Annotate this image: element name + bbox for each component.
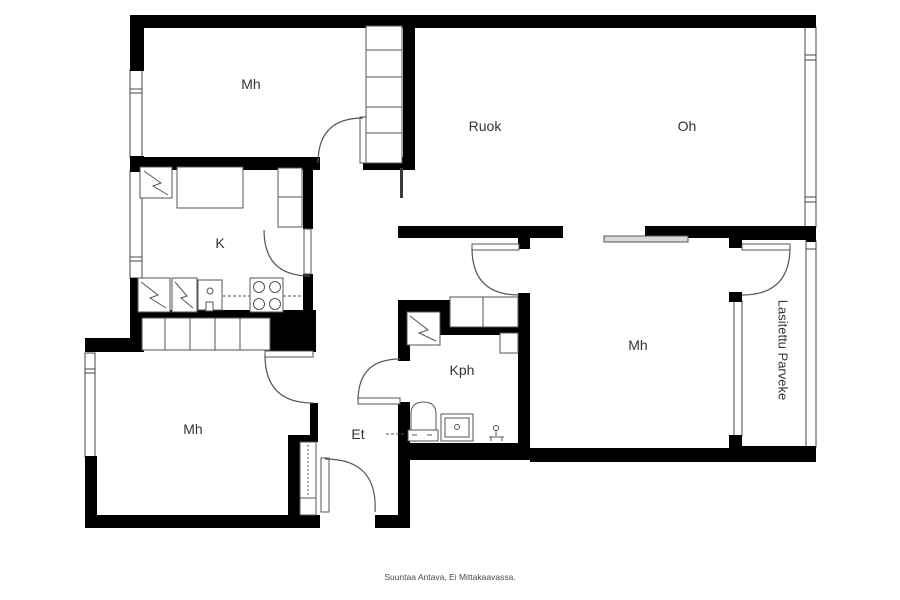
window-balcony-right bbox=[806, 241, 816, 447]
door-arc-mh-top bbox=[318, 118, 363, 163]
room-label-mh-right: Mh bbox=[628, 337, 647, 353]
toilet-icon bbox=[411, 402, 436, 432]
hall-cabinet bbox=[450, 297, 518, 327]
wall-block-kitchen-mh bbox=[269, 312, 316, 352]
sliding-door bbox=[604, 236, 688, 242]
wall-left-corner bbox=[130, 15, 144, 71]
door-arc-entry bbox=[325, 459, 375, 512]
wall-vest-mh-b bbox=[518, 293, 530, 460]
wall-vest-mh-a bbox=[518, 238, 530, 249]
window-mh-top-left bbox=[130, 70, 142, 157]
wall-mh-balcony-b bbox=[729, 292, 742, 302]
wall-kitchen-right-a bbox=[303, 163, 313, 229]
door-leaf-kph bbox=[358, 398, 400, 404]
wall-et-west-lower bbox=[288, 442, 300, 518]
room-label-kph: Kph bbox=[450, 362, 475, 378]
wall-mh-balcony-c bbox=[729, 435, 742, 460]
kph-cabinet bbox=[500, 333, 518, 353]
wall-thin-partition bbox=[400, 168, 403, 198]
door-arc-mh-right bbox=[472, 248, 519, 295]
wall-kph-bottom bbox=[398, 443, 530, 460]
room-label-oh: Oh bbox=[678, 118, 697, 134]
wall-balcony-right-top bbox=[806, 226, 816, 242]
wardrobe-row bbox=[142, 318, 270, 350]
door-leaf-mh-top bbox=[360, 117, 366, 163]
door-leaf-entry bbox=[321, 458, 329, 512]
wall-et-kph-b bbox=[398, 402, 410, 528]
wall-mhtop-ruok bbox=[403, 15, 415, 170]
wardrobe-column bbox=[366, 26, 402, 163]
door-arc-balcony bbox=[742, 247, 790, 295]
room-label-ruok: Ruok bbox=[469, 118, 502, 134]
windows bbox=[85, 27, 816, 457]
window-balcony-left bbox=[734, 301, 742, 436]
wall-et-west bbox=[310, 403, 318, 437]
door-leaf-mh-right bbox=[472, 244, 519, 250]
room-label-balcony: Lasitettu Parveke bbox=[776, 300, 791, 400]
room-label-k: K bbox=[215, 235, 224, 251]
door-arc-kitchen bbox=[264, 230, 310, 276]
shower-icon bbox=[489, 426, 504, 442]
wall-balcony-bottom bbox=[737, 446, 816, 462]
wall-step bbox=[85, 338, 144, 352]
walls bbox=[85, 15, 816, 528]
room-label-mh-left: Mh bbox=[183, 421, 202, 437]
door-arc-kph bbox=[358, 359, 400, 401]
sink-faucet bbox=[206, 302, 213, 311]
door-arc-mh-left bbox=[265, 355, 313, 403]
plan-caption: Suuntaa Antava, Ei Mittakaavassa. bbox=[300, 572, 600, 582]
wall-top bbox=[130, 15, 816, 28]
wall-bottom-left bbox=[85, 515, 320, 528]
floor-plan: Mh Ruok Oh K Mh Et Kph Mh Lasitettu Parv… bbox=[0, 0, 900, 600]
room-label-mh-top: Mh bbox=[241, 76, 260, 92]
door-leaf-kitchen bbox=[304, 229, 311, 274]
wall-ruok-bottom bbox=[398, 226, 563, 238]
room-label-et: Et bbox=[351, 426, 364, 442]
kitchen-table bbox=[177, 167, 243, 208]
wall-balcony-right-bottom bbox=[806, 446, 816, 462]
floor-plan-drawing bbox=[0, 0, 900, 600]
door-leaf-mh-left bbox=[265, 351, 313, 357]
wall-balcony-top bbox=[737, 226, 816, 240]
wall-et-step bbox=[288, 435, 318, 442]
door-leaf-balcony bbox=[742, 244, 790, 250]
wall-mhright-bottom bbox=[530, 448, 737, 462]
wall-mh-balcony-a bbox=[729, 238, 742, 248]
